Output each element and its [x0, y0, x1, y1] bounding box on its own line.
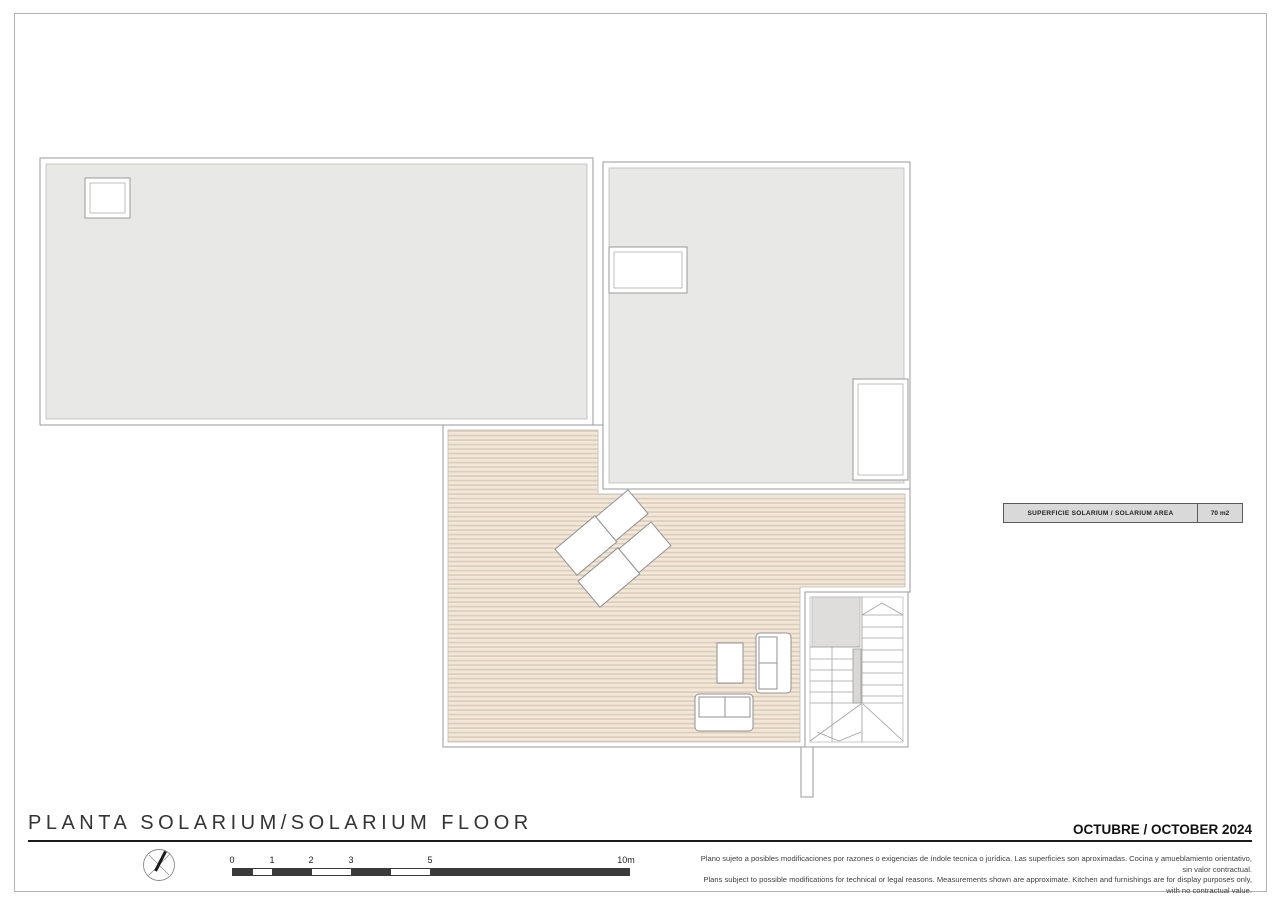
scale-tick-10m: 10m	[617, 855, 635, 865]
area-label-value: 70 m2	[1197, 504, 1242, 522]
area-label-name: SUPERFICIE SOLARIUM / SOLARIUM AREA	[1004, 504, 1197, 522]
disclaimer-english: Plans subject to possible modifications …	[700, 875, 1252, 896]
roof-shaft	[853, 379, 908, 480]
left-roof	[40, 158, 593, 425]
side-table	[717, 643, 743, 683]
drawing-sheet: SUPERFICIE SOLARIUM / SOLARIUM AREA 70 m…	[0, 0, 1280, 906]
stair-stringer	[853, 649, 861, 703]
scale-tick-5: 5	[427, 855, 432, 865]
scale-tick-1: 1	[269, 855, 274, 865]
disclaimer-text: Plano sujeto a posibles modificaciones p…	[700, 854, 1252, 896]
wall-protrusion	[801, 747, 813, 797]
title-rule	[28, 840, 1252, 842]
disclaimer-spanish: Plano sujeto a posibles modificaciones p…	[700, 854, 1252, 875]
scale-bar	[232, 868, 630, 876]
right-roof	[603, 162, 910, 489]
stairwell	[805, 592, 908, 747]
sofa-bottom	[695, 694, 753, 731]
page-title: PLANTA SOLARIUM/SOLARIUM FLOOR	[28, 812, 533, 835]
area-label-box: SUPERFICIE SOLARIUM / SOLARIUM AREA 70 m…	[1003, 503, 1243, 523]
date-label: OCTUBRE / OCTOBER 2024	[1073, 822, 1252, 837]
scale-tick-0: 0	[229, 855, 234, 865]
stair-landing	[812, 597, 860, 647]
right-skylight	[609, 247, 687, 293]
left-skylight	[85, 178, 130, 218]
sofa-right	[756, 633, 791, 693]
north-arrow-icon	[142, 848, 178, 884]
scale-tick-2: 2	[308, 855, 313, 865]
floor-plan-drawing	[0, 0, 1280, 906]
scale-tick-3: 3	[348, 855, 353, 865]
